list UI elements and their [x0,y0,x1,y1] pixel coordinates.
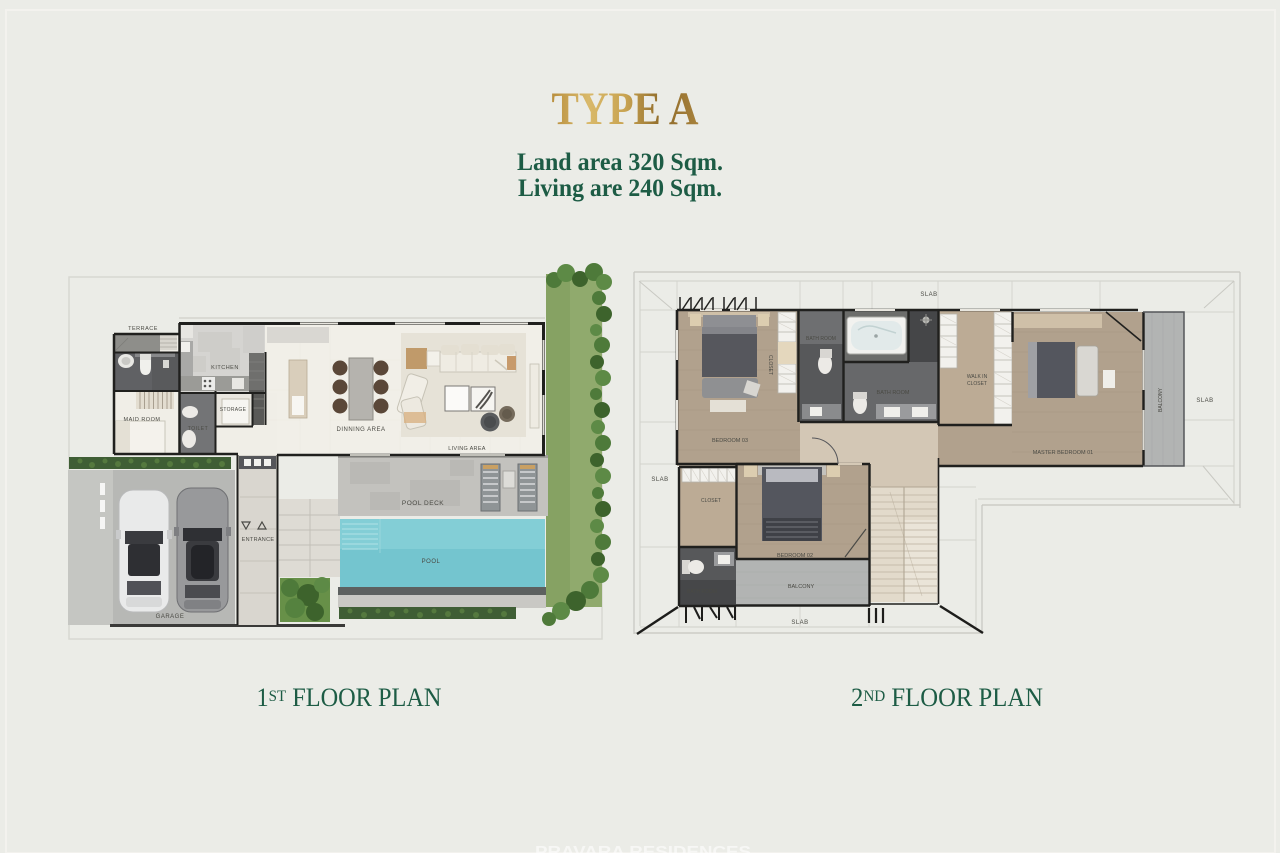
svg-text:BALCONY: BALCONY [1158,387,1164,412]
svg-text:WALK IN: WALK IN [967,374,988,380]
svg-text:CLOSET: CLOSET [767,355,773,375]
svg-text:BATH ROOM: BATH ROOM [806,336,836,342]
svg-text:TYPE A: TYPE A [552,83,699,135]
svg-text:CLOSET: CLOSET [701,498,721,504]
svg-text:BEDROOM 02: BEDROOM 02 [777,553,813,559]
svg-text:SLAB: SLAB [791,620,808,626]
svg-text:PRAVARA RESIDENCES: PRAVARA RESIDENCES [535,844,751,853]
svg-text:BALCONY: BALCONY [788,584,815,590]
svg-text:SLAB: SLAB [651,477,668,483]
svg-text:TOILET: TOILET [188,426,208,432]
svg-text:POOL DECK: POOL DECK [402,500,444,507]
svg-text:BEDROOM 03: BEDROOM 03 [712,438,748,444]
svg-text:MASTER BEDROOM 01: MASTER BEDROOM 01 [1033,450,1094,456]
svg-text:BATH ROOM: BATH ROOM [687,589,717,595]
svg-text:SLAB: SLAB [920,292,937,298]
svg-text:Land area 320 Sqm.: Land area 320 Sqm. [517,149,723,176]
svg-text:STORAGE: STORAGE [220,407,247,413]
svg-text:DINNING AREA: DINNING AREA [336,427,385,433]
svg-text:Living are 240 Sqm.: Living are 240 Sqm. [518,175,722,202]
svg-text:KITCHEN: KITCHEN [211,365,239,371]
svg-text:LIVING AREA: LIVING AREA [448,446,486,452]
svg-text:TERRACE: TERRACE [128,326,158,332]
svg-text:MAID ROOM: MAID ROOM [124,417,161,423]
svg-text:SLAB: SLAB [1196,398,1213,404]
svg-text:BATH ROOM: BATH ROOM [877,390,910,396]
svg-text:CLOSET: CLOSET [967,381,987,387]
svg-text:GARAGE: GARAGE [156,614,185,620]
svg-text:ENTRANCE: ENTRANCE [242,537,275,543]
svg-text:POOL: POOL [422,559,441,565]
